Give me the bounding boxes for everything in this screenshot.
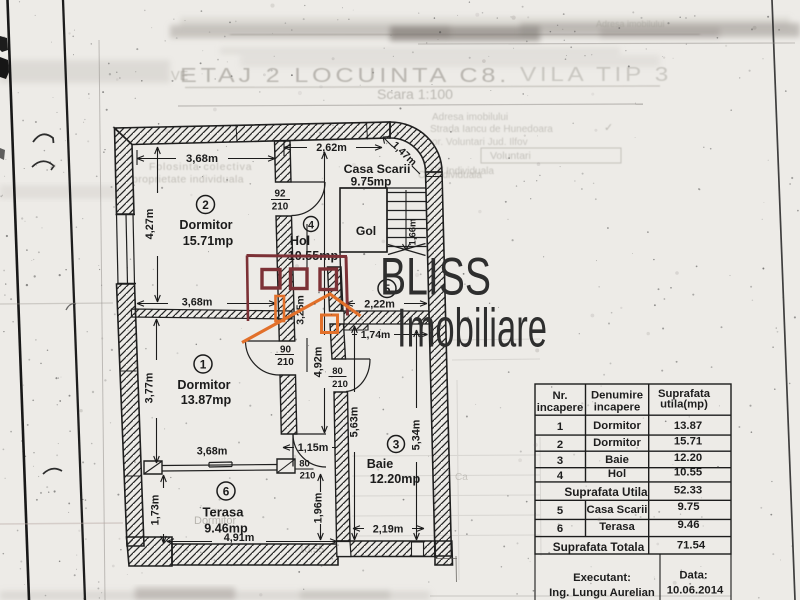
svg-text:Hol: Hol bbox=[608, 468, 626, 480]
svg-text:4,91m: 4,91m bbox=[224, 532, 255, 544]
svg-text:Scara 1:100: Scara 1:100 bbox=[377, 87, 453, 102]
svg-text:92: 92 bbox=[275, 189, 286, 200]
svg-text:Data:: Data: bbox=[679, 570, 707, 582]
svg-text:13.87mp: 13.87mp bbox=[181, 393, 232, 407]
svg-text:Adresa imobilului: Adresa imobilului bbox=[432, 112, 508, 123]
svg-text:1,74m: 1,74m bbox=[361, 330, 390, 341]
svg-text:6: 6 bbox=[223, 485, 230, 499]
svg-text:80: 80 bbox=[299, 459, 310, 470]
svg-text:1: 1 bbox=[200, 358, 207, 372]
svg-text:9.75: 9.75 bbox=[678, 501, 700, 513]
svg-text:80: 80 bbox=[332, 366, 343, 377]
svg-text:4: 4 bbox=[557, 470, 564, 482]
svg-text:VE: VE bbox=[171, 68, 189, 83]
svg-text:1: 1 bbox=[557, 421, 563, 433]
svg-text:utila(mp): utila(mp) bbox=[660, 399, 708, 411]
svg-text:VILA TIP 3: VILA TIP 3 bbox=[520, 64, 672, 86]
svg-text:3,68m: 3,68m bbox=[197, 446, 228, 458]
svg-text:Suprafata Utila: Suprafata Utila bbox=[564, 485, 648, 499]
svg-text:Baie: Baie bbox=[605, 454, 629, 466]
svg-text:4: 4 bbox=[308, 219, 314, 231]
svg-text:Casa Scarii: Casa Scarii bbox=[587, 504, 648, 516]
svg-text:2,62m: 2,62m bbox=[316, 142, 347, 154]
svg-text:4,27m: 4,27m bbox=[144, 209, 156, 240]
svg-text:1,15m: 1,15m bbox=[298, 442, 329, 454]
svg-text:3,77m: 3,77m bbox=[144, 373, 156, 404]
svg-text:Baie: Baie bbox=[367, 457, 394, 471]
svg-text:3: 3 bbox=[393, 437, 400, 451]
svg-text:3: 3 bbox=[557, 455, 563, 467]
svg-text:5,34m: 5,34m bbox=[411, 420, 423, 451]
svg-text:incapere: incapere bbox=[594, 402, 640, 414]
svg-text:ETAJ 2 LOCUINTA C8.: ETAJ 2 LOCUINTA C8. bbox=[180, 65, 510, 87]
svg-text:Hol: Hol bbox=[290, 234, 310, 248]
svg-text:210: 210 bbox=[277, 357, 294, 368]
svg-text:Strada Iancu de Hunedoara: Strada Iancu de Hunedoara bbox=[430, 124, 553, 135]
svg-text:210: 210 bbox=[332, 379, 348, 390]
svg-text:Ing. Lungu Aurelian: Ing. Lungu Aurelian bbox=[549, 587, 655, 599]
svg-text:Voluntari: Voluntari bbox=[490, 150, 531, 162]
svg-text:2,19m: 2,19m bbox=[373, 524, 404, 536]
svg-text:Dormitor: Dormitor bbox=[177, 378, 230, 392]
svg-text:15.71: 15.71 bbox=[674, 436, 702, 448]
svg-text:71.54: 71.54 bbox=[677, 540, 706, 552]
svg-text:Terasa: Terasa bbox=[599, 521, 635, 533]
svg-text:13.87: 13.87 bbox=[674, 420, 702, 432]
svg-text:Terasa: Terasa bbox=[203, 505, 245, 520]
svg-text:✓: ✓ bbox=[604, 122, 613, 134]
svg-text:1,96m: 1,96m bbox=[313, 493, 325, 524]
svg-text:Dormitor: Dormitor bbox=[179, 218, 232, 232]
svg-text:3,68m: 3,68m bbox=[182, 297, 213, 309]
svg-text:12.20: 12.20 bbox=[674, 452, 702, 464]
svg-text:10.55: 10.55 bbox=[674, 467, 702, 479]
svg-text:Dormitor: Dormitor bbox=[593, 420, 641, 432]
svg-text:9.46: 9.46 bbox=[678, 519, 700, 531]
svg-text:1,73m: 1,73m bbox=[150, 495, 162, 526]
svg-text:Dormitor: Dormitor bbox=[593, 437, 641, 449]
svg-text:10.06.2014: 10.06.2014 bbox=[667, 585, 724, 597]
svg-text:Denumire: Denumire bbox=[591, 390, 643, 402]
svg-text:Imobiliare: Imobiliare bbox=[397, 297, 547, 359]
svg-text:5: 5 bbox=[557, 505, 563, 517]
svg-text:Gol: Gol bbox=[356, 224, 376, 238]
svg-text:Adresa imobilului: Adresa imobilului bbox=[596, 19, 665, 29]
svg-text:9.75mp: 9.75mp bbox=[351, 175, 392, 189]
svg-text:Ca: Ca bbox=[455, 472, 468, 483]
svg-text:52.33: 52.33 bbox=[674, 485, 702, 497]
svg-text:Suprafata Totala: Suprafata Totala bbox=[553, 540, 645, 554]
svg-text:12.20mp: 12.20mp bbox=[370, 472, 421, 486]
svg-text:2: 2 bbox=[557, 439, 563, 451]
svg-text:2: 2 bbox=[202, 198, 209, 212]
svg-text:Nr.: Nr. bbox=[552, 390, 567, 402]
svg-text:5,63m: 5,63m bbox=[349, 407, 361, 438]
svg-text:3,68m: 3,68m bbox=[186, 153, 218, 165]
svg-text:or. Voluntari Jud. Ilfov: or. Voluntari Jud. Ilfov bbox=[432, 137, 528, 148]
svg-text:15.71mp: 15.71mp bbox=[183, 234, 234, 248]
svg-text:210: 210 bbox=[300, 471, 316, 482]
svg-text:90: 90 bbox=[280, 345, 291, 356]
svg-text:210: 210 bbox=[272, 202, 289, 213]
svg-text:Executant:: Executant: bbox=[573, 572, 631, 584]
svg-text:incapere: incapere bbox=[537, 402, 583, 414]
svg-text:1,66m: 1,66m bbox=[408, 219, 419, 246]
svg-text:4,92m: 4,92m bbox=[313, 347, 325, 378]
